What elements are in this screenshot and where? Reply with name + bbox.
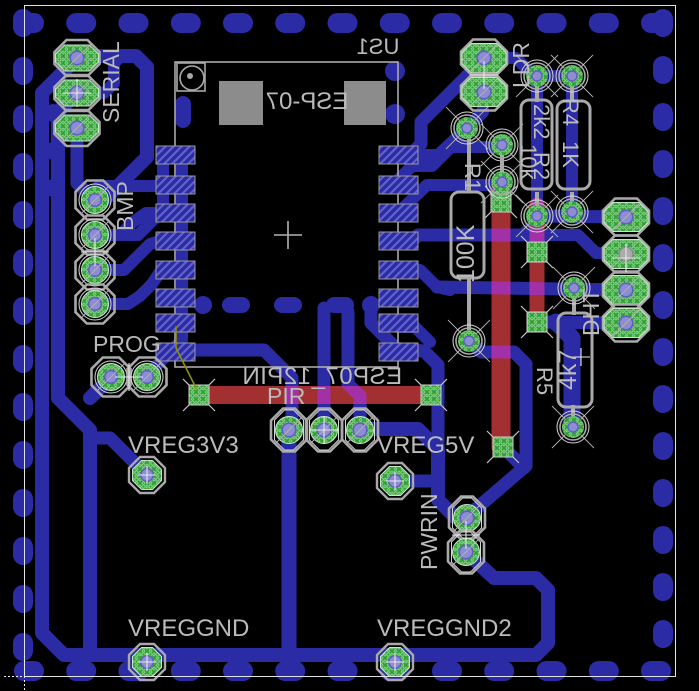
- svg-text:VREG3V3: VREG3V3: [128, 432, 239, 459]
- svg-text:VREGGND2: VREGGND2: [377, 615, 512, 642]
- svg-text:VREG5V: VREG5V: [377, 432, 474, 459]
- svg-text:DHT: DHT: [578, 289, 604, 336]
- svg-text:10k: 10k: [516, 144, 541, 180]
- svg-text:ESP-07: ESP-07: [266, 88, 349, 115]
- svg-text:SERIAL: SERIAL: [98, 41, 124, 123]
- svg-text:VREGGND: VREGGND: [128, 615, 249, 642]
- svg-text:100K: 100K: [452, 224, 480, 283]
- svg-text:R1: R1: [460, 163, 485, 191]
- svg-text:PIR: PIR: [267, 383, 305, 409]
- svg-text:4k7: 4k7: [554, 350, 582, 390]
- svg-text:BMP: BMP: [112, 181, 138, 231]
- svg-text:1K: 1K: [558, 141, 583, 168]
- svg-text:2k2: 2k2: [529, 104, 554, 139]
- svg-text:PROG: PROG: [93, 331, 161, 357]
- svg-text:R4: R4: [558, 98, 583, 126]
- svg-text:PWRIN: PWRIN: [416, 493, 442, 570]
- svg-text:ESP07_12PIN: ESP07_12PIN: [242, 363, 402, 390]
- svg-text:LDR: LDR: [508, 42, 534, 88]
- svg-text:US1: US1: [357, 34, 400, 59]
